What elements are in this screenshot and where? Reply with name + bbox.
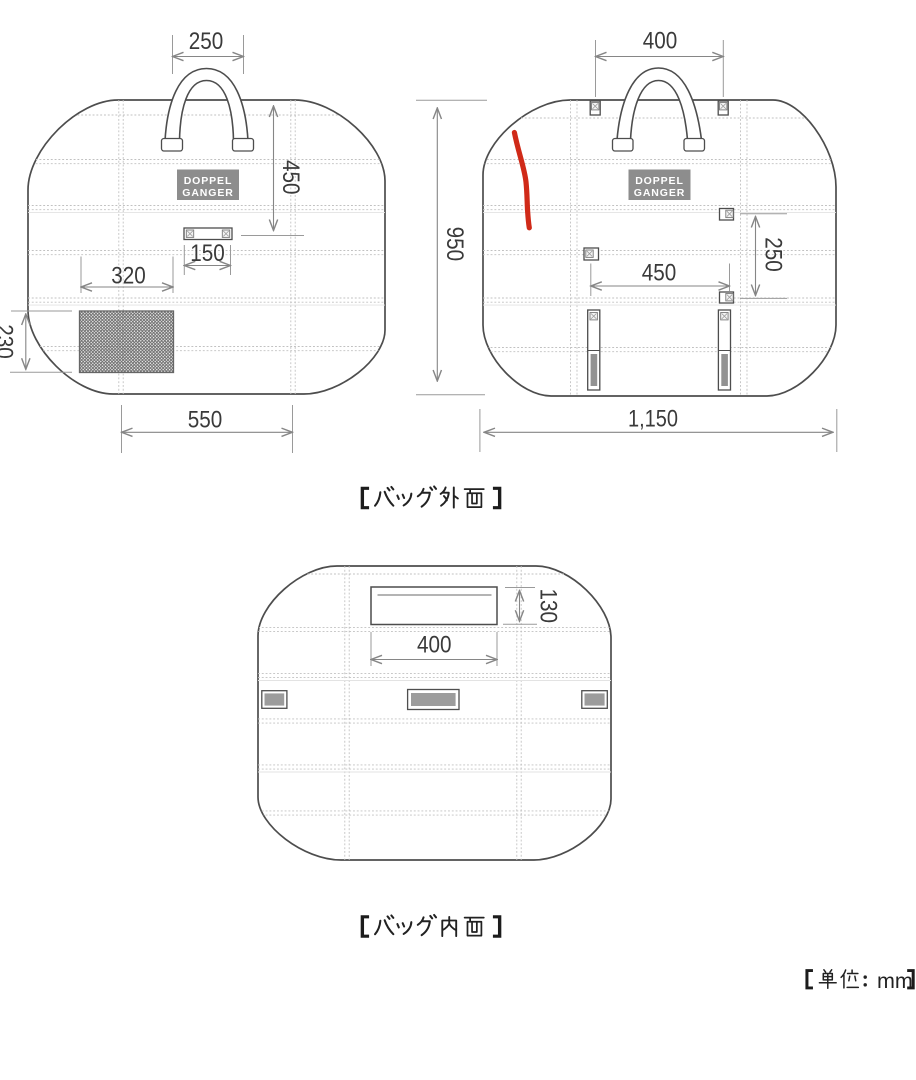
svg-text:GANGER: GANGER (634, 187, 686, 199)
svg-text:250: 250 (759, 237, 786, 272)
svg-text:450: 450 (642, 260, 677, 287)
svg-text:DOPPEL: DOPPEL (635, 175, 684, 187)
svg-text:950: 950 (441, 227, 468, 262)
svg-text:130: 130 (535, 589, 562, 624)
svg-text:550: 550 (188, 407, 223, 434)
svg-text:320: 320 (111, 263, 146, 290)
svg-text:250: 250 (189, 28, 224, 55)
svg-text:400: 400 (417, 632, 452, 659)
svg-text:mm: mm (877, 969, 913, 993)
svg-text:230: 230 (0, 324, 18, 359)
svg-text:150: 150 (190, 240, 225, 267)
svg-text:450: 450 (277, 160, 304, 195)
svg-text:GANGER: GANGER (182, 187, 234, 199)
svg-text:DOPPEL: DOPPEL (184, 175, 233, 187)
svg-text:1,150: 1,150 (628, 406, 678, 433)
svg-text:400: 400 (643, 28, 678, 55)
